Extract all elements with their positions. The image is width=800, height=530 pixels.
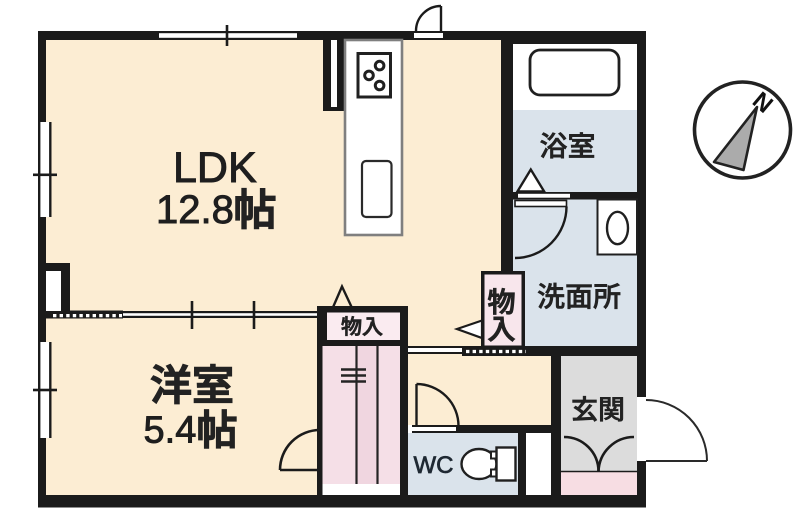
svg-text:5.4: 5.4 xyxy=(144,410,197,452)
svg-text:WC: WC xyxy=(414,452,454,479)
svg-text:LDK: LDK xyxy=(173,144,257,192)
svg-text:12.8: 12.8 xyxy=(156,188,234,232)
